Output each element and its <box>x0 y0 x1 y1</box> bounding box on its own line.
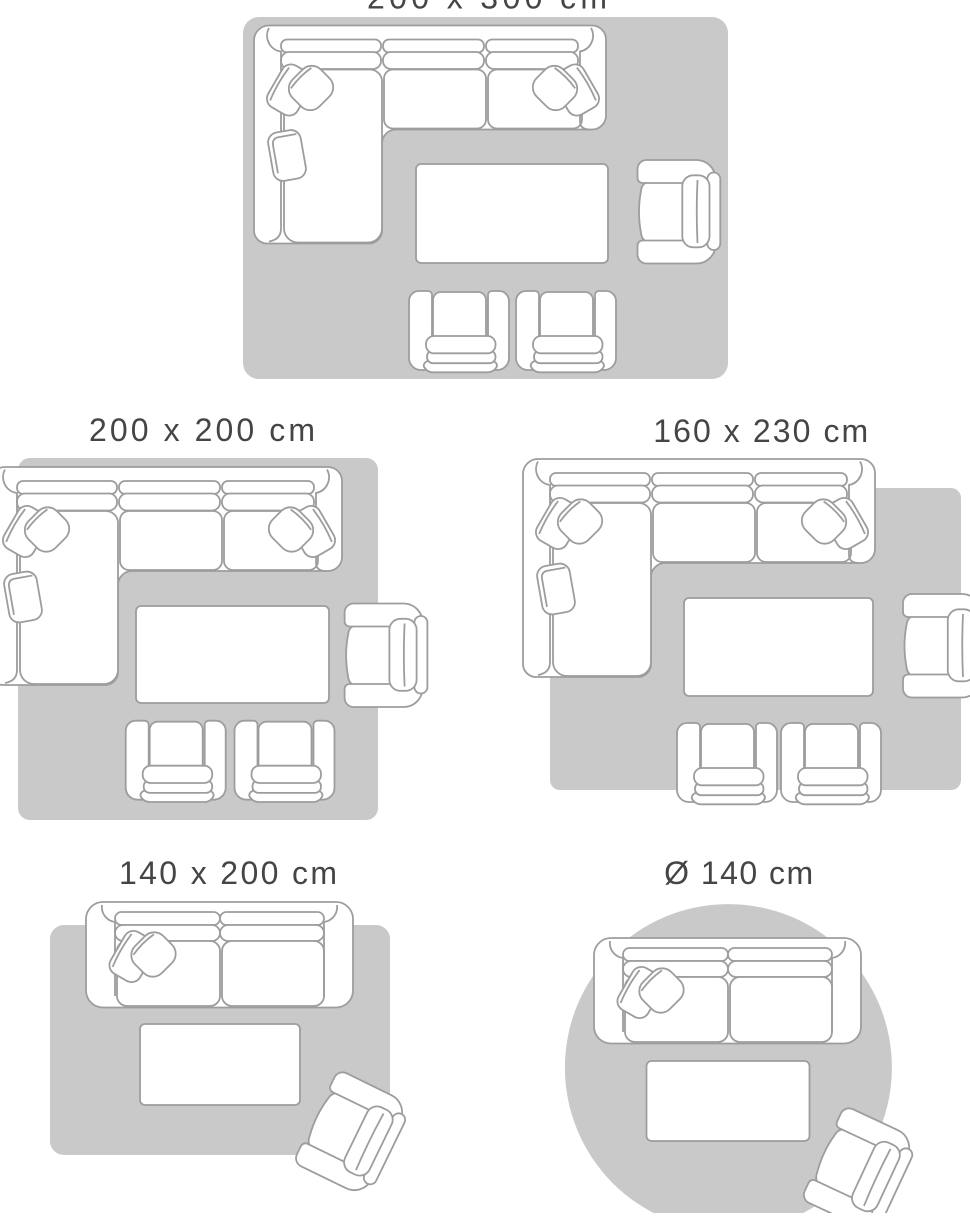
svg-text:160 x 230 cm: 160 x 230 cm <box>653 413 868 449</box>
svg-text:200 x 200 cm: 200 x 200 cm <box>89 412 315 448</box>
svg-text:200 x 300 cm: 200 x 300 cm <box>367 0 607 16</box>
svg-text:Ø 140 cm: Ø 140 cm <box>664 855 813 891</box>
svg-text:140 x 200 cm: 140 x 200 cm <box>119 855 337 891</box>
